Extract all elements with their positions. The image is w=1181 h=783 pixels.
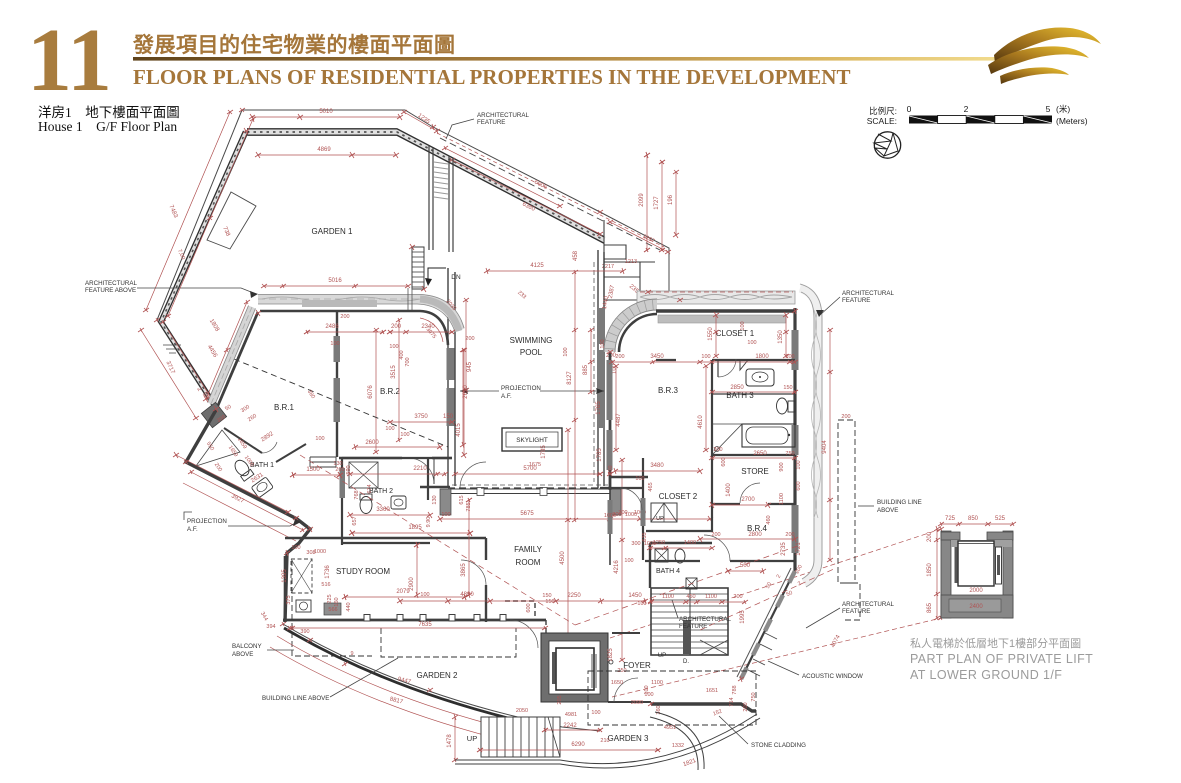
svg-text:SKYLIGHT: SKYLIGHT [516, 437, 548, 444]
svg-text:1727: 1727 [654, 196, 660, 210]
svg-text:2210: 2210 [413, 466, 427, 472]
svg-text:2800: 2800 [748, 532, 762, 538]
svg-text:FEATURE: FEATURE [842, 297, 870, 304]
svg-text:225: 225 [327, 594, 333, 603]
svg-text:750: 750 [785, 451, 794, 457]
svg-text:100: 100 [563, 347, 569, 356]
svg-text:1785: 1785 [597, 448, 603, 462]
svg-text:(Meters): (Meters) [1056, 116, 1088, 126]
svg-text:725: 725 [945, 516, 956, 522]
svg-text:9404: 9404 [822, 440, 828, 454]
svg-text:8127: 8127 [567, 371, 573, 385]
svg-text:BALCONY: BALCONY [232, 643, 262, 650]
svg-text:100: 100 [389, 344, 398, 350]
svg-text:150: 150 [545, 599, 554, 605]
svg-text:100: 100 [644, 685, 650, 694]
svg-text:PROJECTION: PROJECTION [187, 518, 227, 525]
svg-text:1825: 1825 [608, 648, 614, 662]
svg-text:750: 750 [751, 692, 757, 701]
svg-text:洋房1 地下樓面平面圖: 洋房1 地下樓面平面圖 [38, 105, 180, 120]
svg-text:5: 5 [1046, 104, 1051, 114]
svg-text:100: 100 [591, 710, 600, 716]
svg-text:A.F.: A.F. [187, 526, 198, 533]
svg-text:1100: 1100 [662, 594, 674, 600]
svg-text:AT LOWER GROUND 1/F: AT LOWER GROUND 1/F [910, 668, 1062, 682]
svg-text:100: 100 [600, 339, 606, 348]
svg-text:ARCHITECTURAL: ARCHITECTURAL [842, 601, 894, 608]
svg-text:FAMILY: FAMILY [514, 545, 543, 554]
svg-text:B.R.1: B.R.1 [274, 403, 295, 412]
svg-text:1332: 1332 [672, 743, 684, 749]
svg-text:657: 657 [352, 516, 358, 525]
svg-text:發展項目的住宅物業的樓面平面圖: 發展項目的住宅物業的樓面平面圖 [132, 33, 456, 57]
svg-text:9: 9 [350, 651, 353, 657]
svg-text:200: 200 [340, 314, 349, 320]
svg-text:1000: 1000 [314, 549, 326, 555]
svg-text:GARDEN 2: GARDEN 2 [417, 671, 458, 680]
svg-text:BATH 4: BATH 4 [656, 568, 680, 575]
svg-text:100: 100 [740, 321, 746, 330]
svg-text:1675: 1675 [529, 462, 541, 468]
svg-text:450: 450 [686, 594, 695, 600]
svg-text:160: 160 [334, 597, 340, 606]
svg-text:11: 11 [27, 11, 112, 110]
svg-text:2486: 2486 [325, 324, 339, 330]
svg-text:ARCHITECTURAL: ARCHITECTURAL [477, 112, 529, 119]
svg-text:GARDEN 1: GARDEN 1 [312, 227, 353, 236]
svg-text:9.90: 9.90 [426, 517, 432, 528]
svg-text:ACOUSTIC WINDOW: ACOUSTIC WINDOW [802, 673, 863, 680]
svg-text:FOYER: FOYER [623, 661, 651, 670]
svg-text:700: 700 [405, 357, 411, 366]
svg-text:1736: 1736 [325, 565, 331, 579]
svg-text:100: 100 [624, 558, 633, 564]
svg-text:FEATURE: FEATURE [679, 623, 707, 630]
svg-text:4869: 4869 [317, 147, 331, 153]
svg-text:1650: 1650 [611, 680, 623, 686]
svg-text:2900: 2900 [409, 577, 415, 591]
svg-text:3515: 3515 [391, 365, 397, 379]
svg-text:(米): (米) [1056, 104, 1070, 114]
svg-text:1785: 1785 [541, 445, 547, 459]
svg-text:0: 0 [907, 104, 912, 114]
svg-text:850: 850 [968, 516, 979, 522]
svg-text:200: 200 [733, 594, 742, 600]
svg-text:100: 100 [315, 436, 324, 442]
svg-text:SWIMMING: SWIMMING [510, 336, 553, 345]
svg-text:100: 100 [291, 545, 300, 551]
svg-text:210: 210 [600, 738, 609, 744]
svg-text:STUDY ROOM: STUDY ROOM [336, 567, 390, 576]
svg-text:4500: 4500 [560, 551, 566, 565]
svg-text:100: 100 [400, 432, 409, 438]
svg-text:2600: 2600 [365, 440, 379, 446]
svg-text:2242: 2242 [563, 723, 577, 729]
svg-text:300: 300 [618, 510, 627, 516]
svg-text:945: 945 [467, 361, 473, 372]
svg-text:196: 196 [668, 194, 674, 205]
svg-text:GARDEN 3: GARDEN 3 [608, 734, 649, 743]
svg-text:100: 100 [420, 592, 429, 598]
svg-text:100: 100 [747, 340, 756, 346]
svg-text:UP: UP [467, 734, 477, 743]
svg-text:788: 788 [732, 685, 738, 694]
svg-text:150: 150 [443, 414, 454, 420]
svg-text:1800: 1800 [755, 354, 769, 360]
svg-text:1100: 1100 [705, 594, 717, 600]
svg-text:5675: 5675 [520, 511, 534, 517]
svg-text:375: 375 [286, 595, 292, 604]
svg-text:ARCHITECTURAL: ARCHITECTURAL [85, 280, 137, 287]
svg-text:ABOVE: ABOVE [232, 651, 253, 658]
svg-text:3450: 3450 [650, 354, 664, 360]
svg-text:5016: 5016 [328, 278, 342, 284]
svg-text:6290: 6290 [571, 742, 585, 748]
svg-text:ROOM: ROOM [516, 558, 541, 567]
svg-text:2090: 2090 [631, 700, 643, 706]
svg-text:6076: 6076 [368, 385, 374, 399]
svg-text:785: 785 [466, 502, 472, 511]
svg-text:100: 100 [441, 512, 450, 518]
svg-text:2735: 2735 [781, 542, 787, 556]
svg-text:4487: 4487 [616, 413, 622, 427]
svg-text:200: 200 [785, 532, 794, 538]
svg-text:590: 590 [346, 465, 352, 474]
svg-text:100: 100 [796, 460, 802, 469]
svg-text:1721: 1721 [796, 542, 802, 556]
svg-text:1100: 1100 [651, 680, 663, 686]
svg-text:308: 308 [306, 550, 315, 556]
svg-text:UP: UP [656, 516, 664, 522]
svg-text:5010: 5010 [319, 109, 333, 115]
svg-text:500: 500 [740, 563, 751, 569]
svg-text:600: 600 [796, 481, 802, 490]
svg-text:1765: 1765 [596, 401, 602, 415]
svg-text:B.R.2: B.R.2 [380, 387, 401, 396]
svg-text:200: 200 [711, 532, 720, 538]
svg-text:1850: 1850 [927, 563, 933, 577]
svg-text:200: 200 [335, 467, 344, 473]
svg-text:458: 458 [573, 250, 579, 261]
svg-text:2: 2 [964, 104, 969, 114]
svg-text:100: 100 [637, 601, 646, 607]
svg-text:1450: 1450 [628, 593, 642, 599]
svg-text:200: 200 [391, 324, 402, 330]
svg-text:SCALE:: SCALE: [867, 116, 897, 126]
svg-text:2250: 2250 [567, 593, 581, 599]
svg-text:200: 200 [465, 336, 474, 342]
svg-text:CLOSET 2: CLOSET 2 [659, 492, 698, 501]
svg-text:2700: 2700 [741, 497, 755, 503]
svg-text:674: 674 [367, 484, 373, 493]
svg-text:私人電梯於低層地下1樓部分平面圖: 私人電梯於低層地下1樓部分平面圖 [910, 636, 1081, 650]
svg-text:865: 865 [927, 602, 933, 613]
svg-text:3750: 3750 [414, 414, 428, 420]
svg-text:525: 525 [995, 516, 1006, 522]
svg-text:BUILDING LINE: BUILDING LINE [877, 499, 922, 506]
svg-text:440: 440 [346, 602, 352, 611]
svg-text:1651: 1651 [706, 688, 718, 694]
svg-text:FEATURE ABOVE: FEATURE ABOVE [85, 287, 136, 294]
svg-text:516: 516 [321, 582, 330, 588]
svg-text:714: 714 [729, 697, 735, 706]
svg-text:1250: 1250 [653, 540, 665, 546]
svg-text:300: 300 [631, 541, 640, 547]
svg-text:394: 394 [266, 624, 275, 630]
svg-text:1478: 1478 [447, 734, 453, 748]
svg-text:3865: 3865 [461, 563, 467, 577]
svg-text:4981: 4981 [565, 712, 577, 718]
svg-text:205: 205 [557, 695, 563, 704]
svg-text:150: 150 [783, 385, 792, 391]
svg-text:1400: 1400 [684, 540, 696, 546]
svg-text:130: 130 [432, 495, 438, 504]
svg-text:FEATURE: FEATURE [842, 608, 870, 615]
svg-text:STONE CLADDING: STONE CLADDING [751, 742, 806, 749]
svg-text:768: 768 [354, 490, 360, 499]
svg-text:566: 566 [328, 607, 337, 613]
svg-text:100: 100 [385, 426, 394, 432]
svg-text:比例尺:: 比例尺: [869, 106, 897, 116]
svg-text:200: 200 [841, 414, 850, 420]
svg-text:100: 100 [701, 354, 710, 360]
svg-text:1500: 1500 [306, 467, 320, 473]
svg-text:1213: 1213 [625, 259, 637, 265]
svg-text:4951: 4951 [664, 725, 676, 731]
svg-text:4610: 4610 [698, 415, 704, 429]
svg-text:615: 615 [459, 495, 465, 504]
svg-text:1350: 1350 [778, 330, 784, 344]
svg-text:600: 600 [526, 603, 532, 612]
svg-text:465: 465 [648, 482, 654, 491]
svg-text:460: 460 [766, 515, 772, 524]
svg-text:ABOVE: ABOVE [877, 507, 898, 514]
svg-text:POOL: POOL [520, 348, 543, 357]
svg-text:A.F.: A.F. [501, 393, 512, 400]
svg-text:D.: D. [683, 659, 689, 665]
svg-text:FLOOR PLANS OF RESIDENTIAL PRO: FLOOR PLANS OF RESIDENTIAL PROPERTIES IN… [133, 65, 850, 89]
svg-text:600: 600 [721, 457, 727, 466]
svg-text:BUILDING LINE ABOVE: BUILDING LINE ABOVE [262, 695, 329, 702]
svg-text:4216: 4216 [614, 560, 620, 574]
svg-text:B.R.3: B.R.3 [658, 386, 679, 395]
svg-text:UP: UP [658, 653, 666, 659]
svg-text:1100: 1100 [779, 493, 785, 505]
svg-text:2050: 2050 [516, 708, 528, 714]
svg-text:2099: 2099 [639, 193, 645, 207]
svg-text:ARCHITECTURAL: ARCHITECTURAL [842, 290, 894, 297]
svg-text:3480: 3480 [650, 463, 664, 469]
svg-text:1395: 1395 [282, 569, 288, 583]
svg-text:885: 885 [583, 364, 589, 375]
svg-text:4125: 4125 [530, 263, 544, 269]
svg-text:4015: 4015 [456, 423, 462, 437]
svg-text:390: 390 [300, 629, 309, 635]
svg-text:100: 100 [330, 341, 339, 347]
svg-text:130: 130 [333, 461, 342, 467]
svg-text:900: 900 [779, 462, 785, 471]
svg-text:PART PLAN OF PRIVATE LIFT: PART PLAN OF PRIVATE LIFT [910, 652, 1093, 666]
svg-text:2000: 2000 [969, 588, 983, 594]
svg-text:1000: 1000 [604, 513, 616, 519]
svg-text:1400: 1400 [726, 483, 732, 497]
svg-text:DN: DN [451, 274, 461, 281]
svg-text:3360: 3360 [376, 507, 390, 513]
svg-text:STORE: STORE [741, 467, 768, 476]
svg-text:FEATURE: FEATURE [477, 119, 505, 126]
svg-text:200: 200 [615, 354, 624, 360]
svg-text:200: 200 [927, 531, 933, 542]
svg-text:2690: 2690 [463, 385, 469, 399]
svg-text:1995: 1995 [740, 610, 746, 624]
svg-text:100: 100 [635, 476, 644, 482]
svg-text:200: 200 [743, 702, 749, 711]
svg-text:7635: 7635 [418, 622, 432, 628]
svg-text:2400: 2400 [969, 604, 983, 610]
svg-text:2850: 2850 [730, 385, 744, 391]
svg-text:300: 300 [713, 447, 722, 453]
svg-text:CLOSET 1: CLOSET 1 [716, 329, 755, 338]
svg-text:2650: 2650 [753, 451, 767, 457]
svg-text:PROJECTION: PROJECTION [501, 385, 541, 392]
svg-text:House 1 G/F Floor Plan: House 1 G/F Floor Plan [38, 119, 177, 134]
